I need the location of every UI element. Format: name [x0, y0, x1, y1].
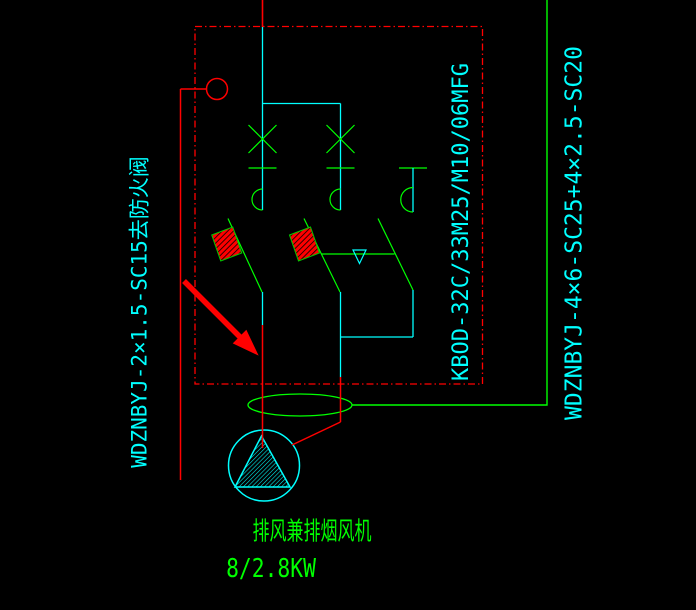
breaker-pole-3: [321, 168, 427, 290]
breaker-pole-2: [263, 104, 355, 293]
cad-canvas: WDZNBYJ-2×1.5-SC15去防火阀 KBOD-32C/33M25/M1…: [0, 0, 696, 610]
load-wiring: [263, 290, 414, 448]
thermal-element-2: [290, 227, 320, 261]
release-arc-icon: [401, 188, 413, 213]
right-cable-label: WDZNBYJ-4×6-SC25+4×2.5-SC20: [564, 46, 587, 420]
distribution-box-outline: [195, 27, 483, 385]
fire-damper-branch: [181, 79, 228, 481]
fan-power-label: 8/2.8KW: [226, 556, 316, 582]
fan-name-label: 排风兼排烟风机: [252, 519, 371, 544]
interlock-triangle-icon: [353, 250, 366, 264]
release-arc-icon: [330, 189, 340, 210]
terminal-circle-icon: [207, 79, 228, 100]
release-arc-icon: [252, 189, 263, 210]
breaker-model-label: KBOD-32C/33M25/M10/06MFG: [451, 63, 473, 381]
thermal-element-1: [212, 227, 242, 261]
left-cable-label: WDZNBYJ-2×1.5-SC15去防火阀: [130, 156, 151, 468]
fan-symbol-icon: [229, 430, 300, 501]
junction-ellipse: [248, 394, 352, 416]
